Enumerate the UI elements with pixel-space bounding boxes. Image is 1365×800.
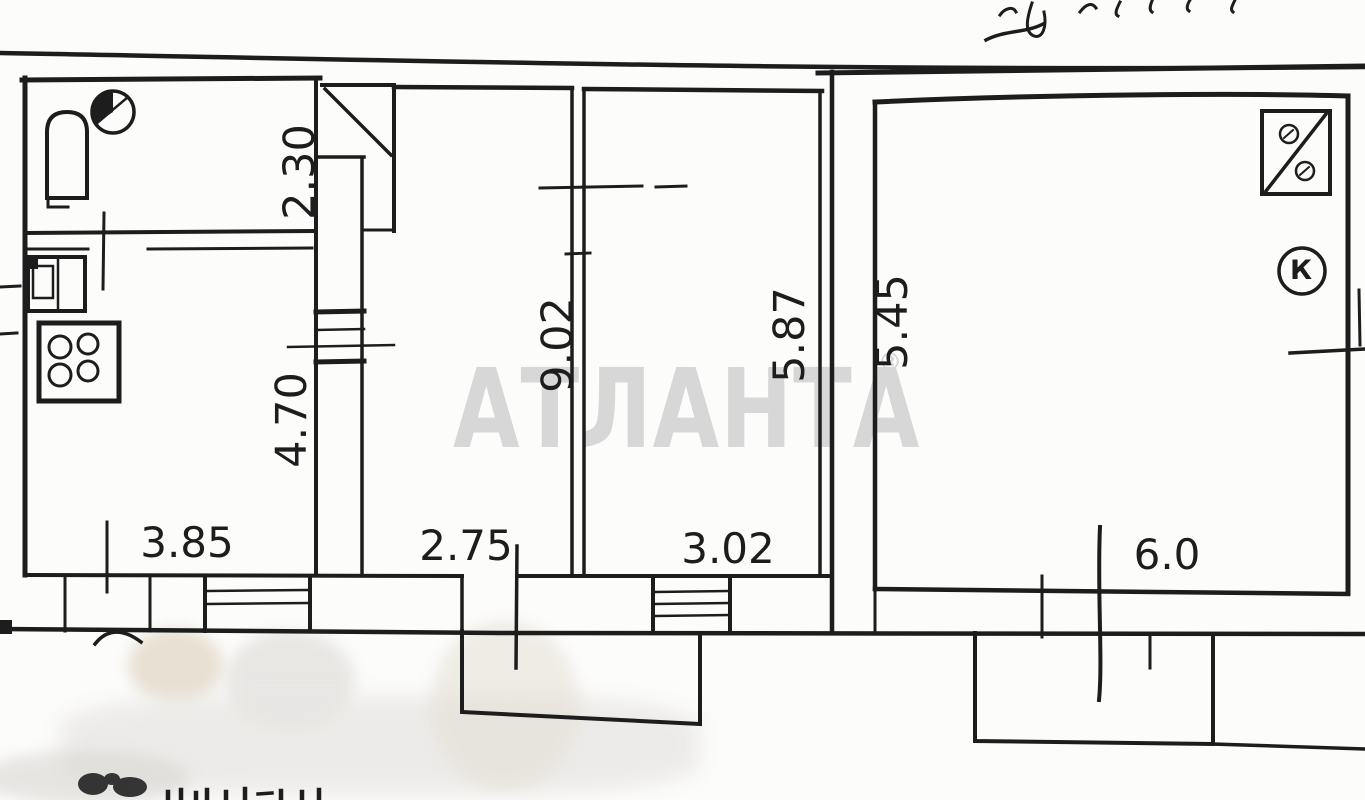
dimension-kitchen-depth: 4.70 — [268, 360, 316, 480]
scanned-floor-plan-page: АТЛАНТА ® — [0, 0, 1365, 800]
dimension-big-room-depth: 5.45 — [869, 262, 917, 382]
dimension-bathroom-depth: 2.30 — [276, 112, 324, 232]
dimension-big-room-width: 6.0 — [1107, 531, 1227, 579]
boiler-letter-label: К — [1281, 253, 1321, 289]
dimension-middle-room-depth: 9.02 — [534, 285, 582, 405]
dimension-left-section-width: 3.85 — [127, 519, 247, 567]
dimension-middle-room-width: 2.75 — [406, 522, 526, 570]
dimension-right-middle-room-width: 3.02 — [668, 525, 788, 573]
dimension-labels: 2.30 4.70 9.02 5.87 5.45 3.85 2.75 3.02 … — [0, 0, 1365, 800]
dimension-right-middle-room-depth: 5.87 — [766, 275, 814, 395]
